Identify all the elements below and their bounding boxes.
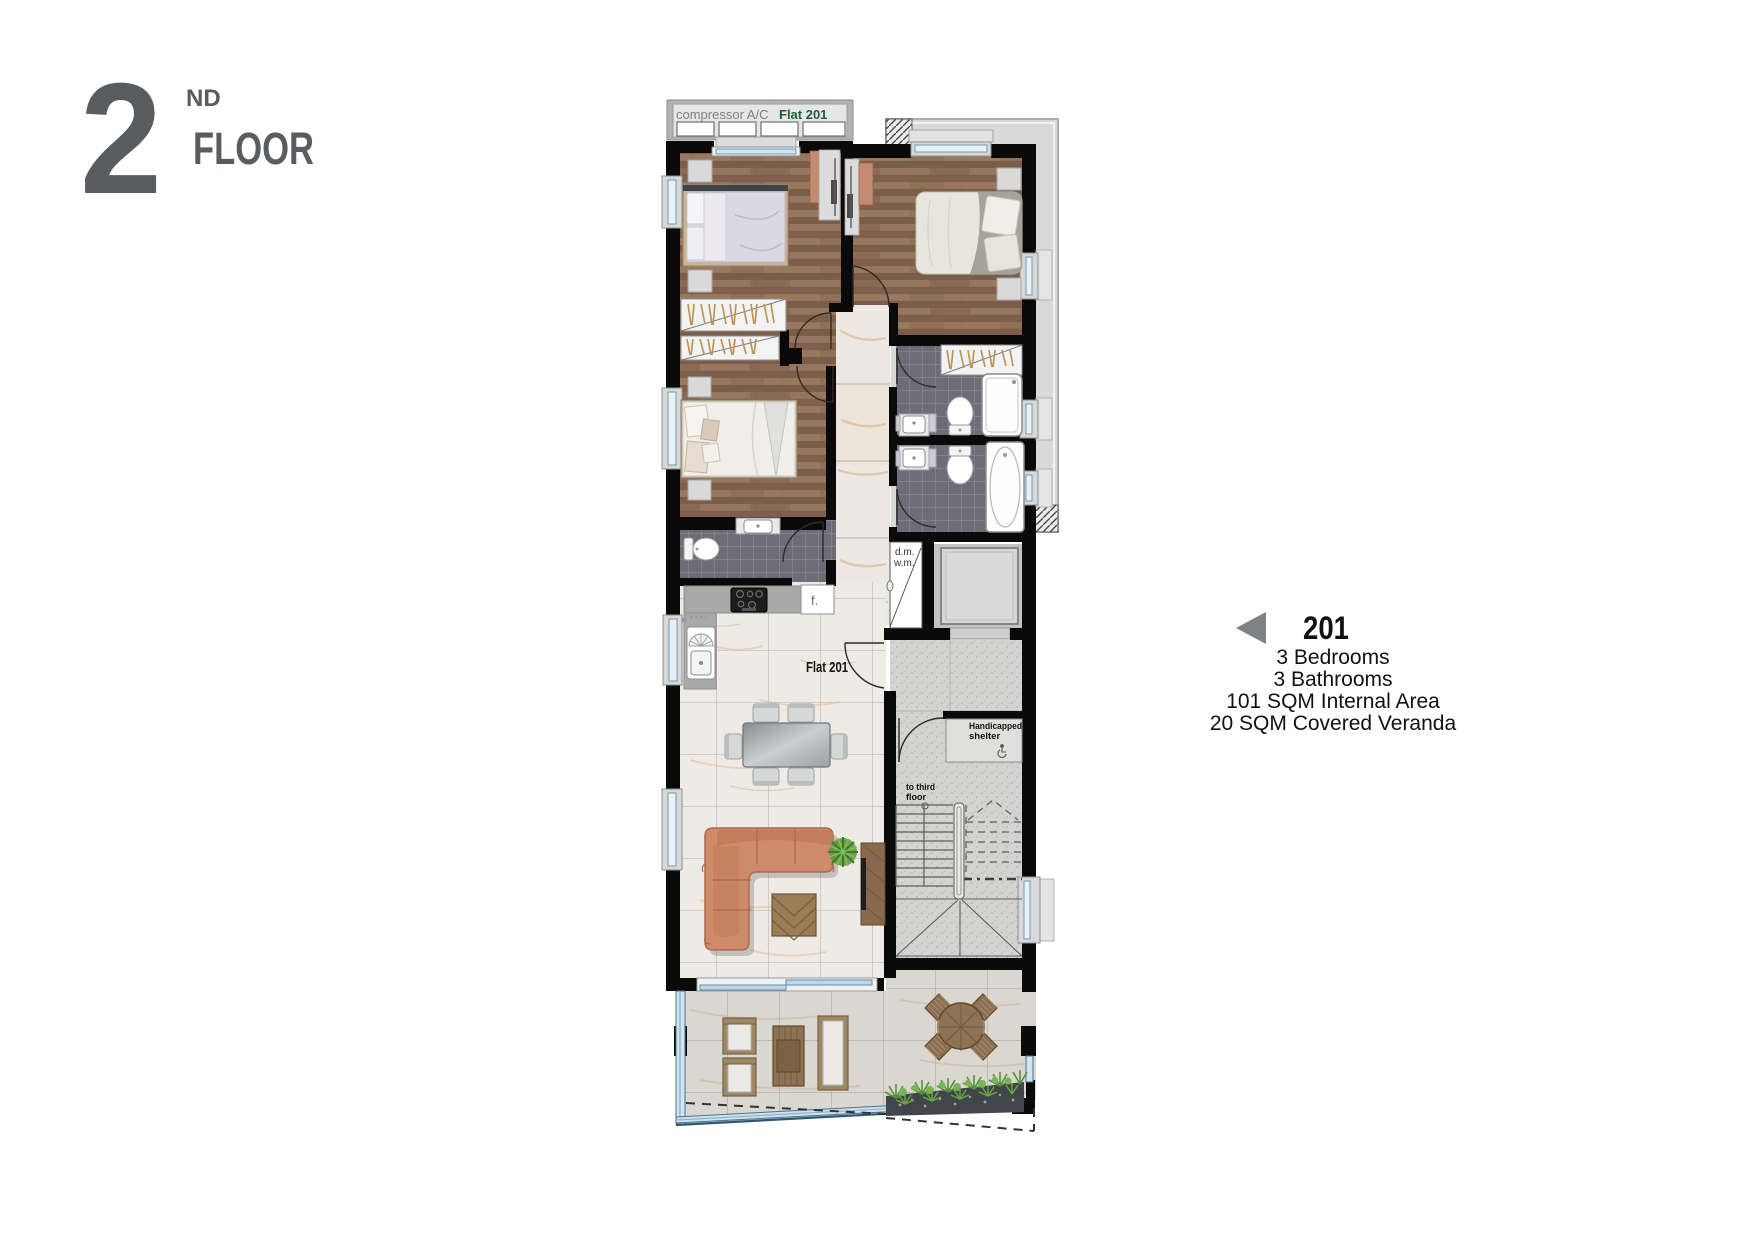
svg-text:w.m.: w.m.: [893, 558, 915, 569]
svg-text:f.: f.: [811, 593, 818, 608]
svg-text:d.m.: d.m.: [895, 547, 914, 558]
svg-text:3 Bathrooms: 3 Bathrooms: [1273, 668, 1392, 691]
svg-text:3 Bedrooms: 3 Bedrooms: [1276, 646, 1389, 669]
svg-text:shelter: shelter: [969, 731, 1000, 742]
svg-text:2: 2: [80, 51, 162, 227]
svg-text:Flat 201: Flat 201: [806, 659, 848, 676]
svg-text:201: 201: [1303, 610, 1349, 646]
svg-text:compressor A/C: compressor A/C: [676, 107, 768, 122]
svg-text:20 SQM Covered Veranda: 20 SQM Covered Veranda: [1210, 712, 1457, 735]
svg-text:floor: floor: [906, 792, 926, 803]
svg-text:101 SQM Internal Area: 101 SQM Internal Area: [1226, 690, 1440, 713]
svg-text:FLOOR: FLOOR: [193, 123, 314, 174]
svg-text:Flat 201: Flat 201: [779, 107, 827, 122]
svg-text:ND: ND: [186, 85, 221, 112]
